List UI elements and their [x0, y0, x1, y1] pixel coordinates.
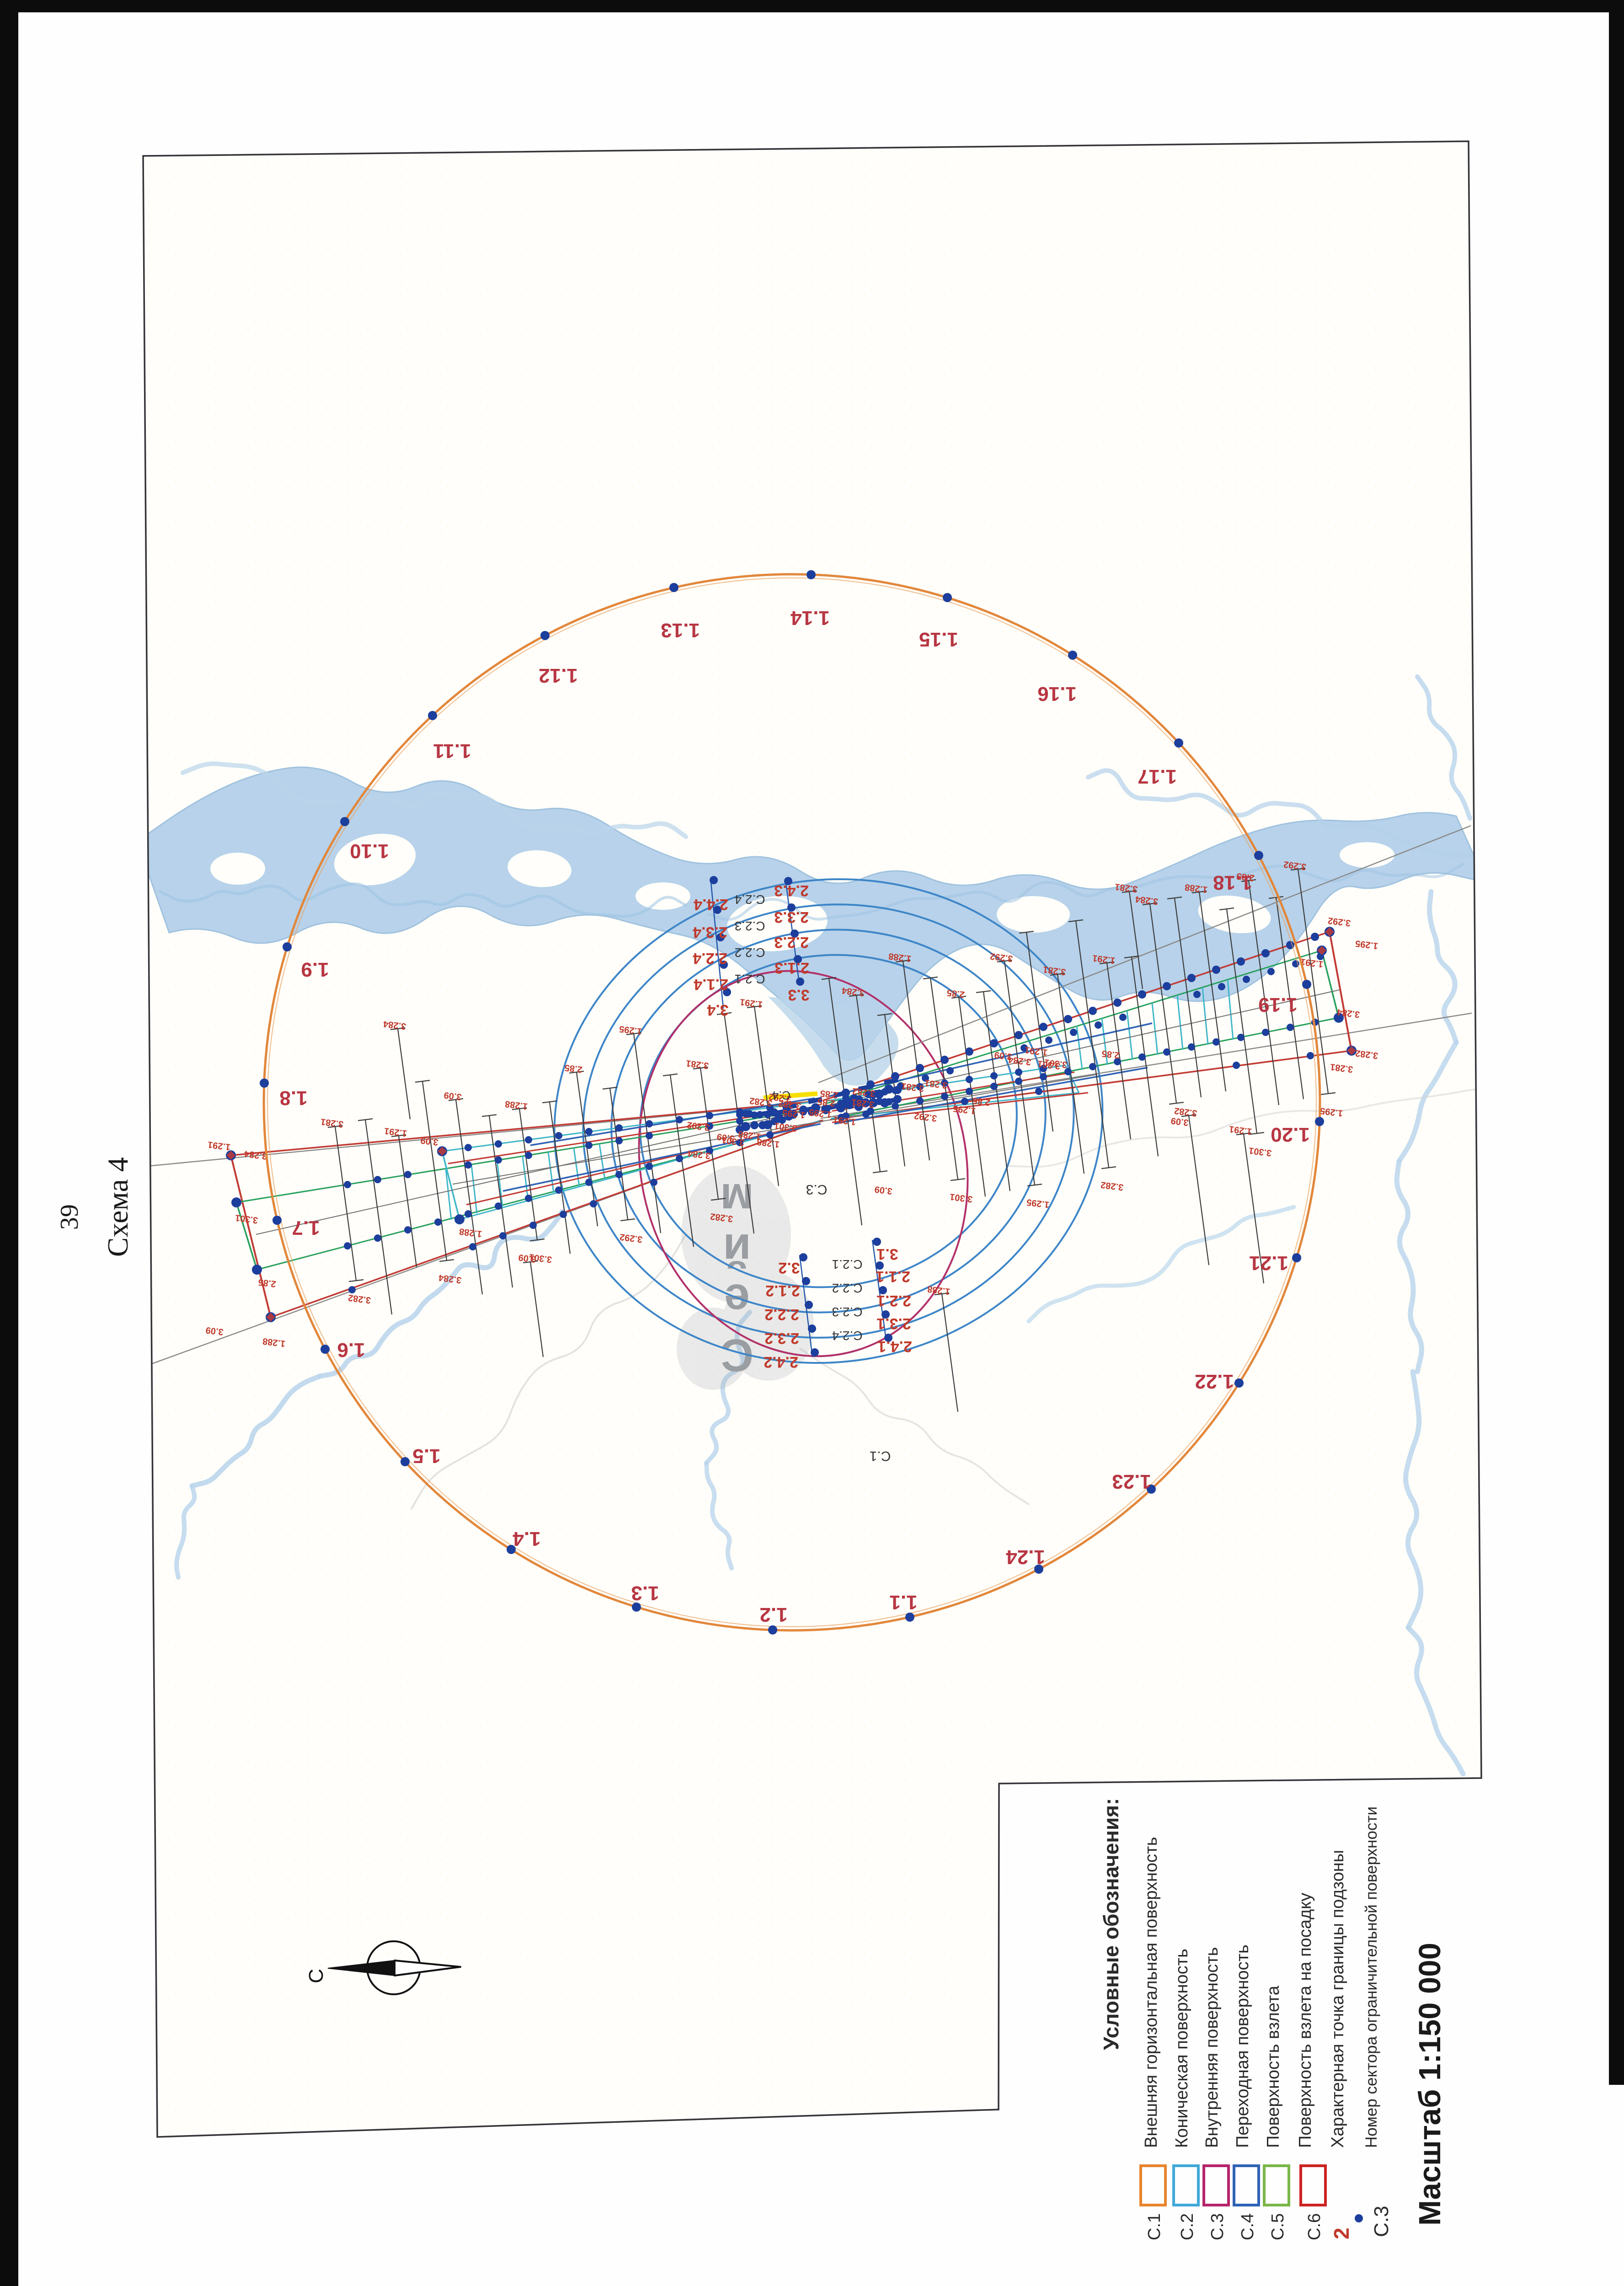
svg-text:1.22: 1.22: [1195, 1370, 1234, 1393]
svg-text:С.3: С.3: [1370, 2206, 1393, 2237]
svg-text:2.1.3: 2.1.3: [775, 959, 809, 977]
svg-text:Условные обозначения:: Условные обозначения:: [1099, 1798, 1123, 2050]
svg-text:3.09: 3.09: [420, 1135, 439, 1148]
svg-text:2.4.3: 2.4.3: [774, 882, 809, 899]
svg-text:2.4.4: 2.4.4: [694, 896, 728, 913]
svg-text:1.9: 1.9: [301, 958, 329, 981]
svg-text:Внешняя горизонтальная поверхн: Внешняя горизонтальная поверхность: [1142, 1837, 1161, 2148]
svg-text:1.8: 1.8: [279, 1087, 307, 1109]
svg-text:2.85: 2.85: [1101, 1048, 1120, 1061]
svg-text:Характерная точка границы подз: Характерная точка границы подзоны: [1328, 1850, 1347, 2148]
svg-text:2.3.1: 2.3.1: [876, 1315, 911, 1332]
svg-text:Внутренняя поверхность: Внутренняя поверхность: [1202, 1947, 1222, 2148]
svg-text:С.4: С.4: [1238, 2213, 1257, 2240]
svg-text:1.2: 1.2: [759, 1603, 787, 1626]
svg-text:С.3: С.3: [806, 1182, 828, 1197]
svg-text:С.5: С.5: [1268, 2213, 1287, 2240]
svg-text:1.1: 1.1: [889, 1591, 917, 1613]
svg-text:С.2.2: С.2.2: [735, 945, 765, 960]
svg-text:1.24: 1.24: [1006, 1546, 1045, 1568]
svg-text:1.14: 1.14: [791, 607, 830, 629]
svg-text:3.09: 3.09: [205, 1325, 224, 1337]
svg-text:1.16: 1.16: [1037, 683, 1077, 705]
svg-text:Номер сектора ограничительной: Номер сектора ограничительной поверхност…: [1362, 1806, 1380, 2148]
svg-text:3.3: 3.3: [788, 986, 809, 1004]
svg-text:2.85: 2.85: [946, 988, 965, 1000]
svg-text:С.2.1: С.2.1: [735, 972, 765, 986]
svg-text:С.6: С.6: [1305, 2213, 1324, 2240]
svg-text:С: С: [305, 1969, 327, 1983]
svg-text:С.1: С.1: [870, 1448, 891, 1463]
svg-text:1.21: 1.21: [1249, 1252, 1288, 1274]
svg-text:3.09: 3.09: [443, 1090, 462, 1102]
svg-text:3.09: 3.09: [518, 1252, 537, 1265]
svg-text:2.4.1: 2.4.1: [877, 1338, 912, 1355]
svg-text:1.13: 1.13: [661, 619, 700, 641]
svg-text:С.3: С.3: [1208, 2213, 1227, 2240]
svg-text:С.2.3: С.2.3: [832, 1305, 863, 1319]
svg-text:3.4: 3.4: [707, 1001, 728, 1019]
svg-text:1.23: 1.23: [1112, 1470, 1151, 1493]
svg-text:1.11: 1.11: [433, 740, 471, 762]
svg-text:2.1.1: 2.1.1: [876, 1268, 910, 1285]
svg-text:1.15: 1.15: [919, 628, 958, 651]
svg-text:39: 39: [55, 1204, 84, 1230]
svg-text:2.2.2: 2.2.2: [764, 1306, 799, 1323]
svg-text:Поверхность взлета на посадку: Поверхность взлета на посадку: [1296, 1893, 1315, 2148]
svg-text:С.2.2: С.2.2: [832, 1281, 863, 1295]
svg-text:1.7: 1.7: [292, 1217, 320, 1239]
svg-text:С.2.4: С.2.4: [735, 892, 765, 907]
svg-text:2.2.1: 2.2.1: [876, 1292, 911, 1309]
svg-text:С.2: С.2: [1178, 2213, 1197, 2240]
svg-text:2.2.4: 2.2.4: [693, 950, 727, 967]
svg-text:1.10: 1.10: [350, 840, 389, 862]
svg-text:С.4: С.4: [772, 1089, 791, 1102]
svg-text:2.85: 2.85: [564, 1063, 583, 1075]
svg-text:2.85: 2.85: [258, 1277, 277, 1289]
svg-text:3.2: 3.2: [778, 1259, 800, 1277]
svg-text:Поверхность взлета: Поверхность взлета: [1264, 1985, 1283, 2148]
svg-text:Переходная поверхность: Переходная поверхность: [1233, 1944, 1252, 2148]
svg-text:2.2.3: 2.2.3: [774, 934, 809, 951]
svg-text:1.18: 1.18: [1213, 871, 1252, 894]
svg-text:Коническая поверхность: Коническая поверхность: [1172, 1949, 1191, 2148]
svg-text:Масштаб 1:150 000: Масштаб 1:150 000: [1413, 1943, 1447, 2226]
svg-text:2.4.2: 2.4.2: [764, 1353, 798, 1371]
svg-text:й: й: [723, 1224, 751, 1276]
svg-text:С.1: С.1: [1145, 2213, 1164, 2240]
svg-text:2.3.3: 2.3.3: [774, 908, 809, 926]
svg-text:С.2.4: С.2.4: [832, 1329, 863, 1343]
svg-text:1.6: 1.6: [337, 1339, 365, 1361]
svg-text:1.20: 1.20: [1271, 1123, 1310, 1146]
svg-text:2.85: 2.85: [817, 1096, 836, 1109]
svg-text:1.12: 1.12: [539, 664, 578, 687]
svg-text:2: 2: [1330, 2227, 1353, 2239]
svg-text:1.4: 1.4: [513, 1528, 541, 1550]
svg-text:С.2.1: С.2.1: [832, 1257, 863, 1271]
svg-text:1.19: 1.19: [1258, 993, 1298, 1016]
svg-text:1.3: 1.3: [631, 1582, 659, 1604]
svg-text:1.17: 1.17: [1138, 765, 1177, 788]
svg-text:2.3.4: 2.3.4: [693, 924, 727, 941]
svg-text:3.1: 3.1: [876, 1245, 898, 1263]
svg-text:С.2.3: С.2.3: [735, 919, 765, 933]
svg-text:3.09: 3.09: [994, 1050, 1013, 1062]
svg-text:1.5: 1.5: [412, 1445, 440, 1467]
svg-text:3.09: 3.09: [874, 1184, 893, 1196]
svg-text:Схема 4: Схема 4: [101, 1157, 134, 1257]
svg-text:2.1.2: 2.1.2: [765, 1282, 800, 1299]
svg-text:2.1.4: 2.1.4: [694, 976, 728, 993]
svg-text:2.85: 2.85: [972, 1095, 991, 1108]
svg-text:2.3.2: 2.3.2: [764, 1330, 799, 1347]
